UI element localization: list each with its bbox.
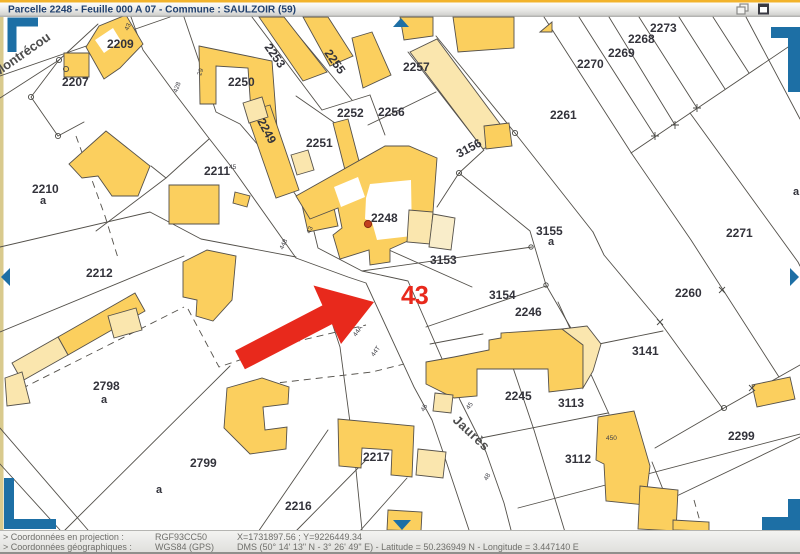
- svg-text:> Coordonnées en projection :: > Coordonnées en projection :: [3, 532, 124, 542]
- svg-text:a: a: [548, 236, 555, 248]
- svg-text:2798: 2798: [93, 379, 120, 393]
- svg-text:RGF93CC50: RGF93CC50: [155, 532, 207, 542]
- svg-text:2257: 2257: [403, 60, 430, 74]
- svg-text:a: a: [101, 394, 108, 406]
- svg-text:2252: 2252: [337, 106, 364, 120]
- svg-text:2207: 2207: [62, 75, 89, 89]
- svg-text:X=1731897.56 ; Y=9226449.34: X=1731897.56 ; Y=9226449.34: [237, 532, 362, 542]
- svg-text:2250: 2250: [228, 75, 255, 89]
- svg-text:2256: 2256: [378, 105, 405, 119]
- svg-text:2245: 2245: [505, 389, 532, 403]
- svg-text:2211: 2211: [204, 164, 230, 178]
- svg-text:2251: 2251: [306, 136, 333, 150]
- svg-text:2210: 2210: [32, 182, 59, 196]
- svg-text:2209: 2209: [107, 37, 134, 51]
- svg-text:3141: 3141: [632, 344, 659, 358]
- svg-text:2299: 2299: [728, 429, 755, 443]
- svg-text:DMS (50° 14' 13" N - 3° 26' 49: DMS (50° 14' 13" N - 3° 26' 49" E) - Lat…: [237, 542, 579, 552]
- svg-text:a: a: [793, 186, 800, 198]
- svg-text:2271: 2271: [726, 226, 753, 240]
- svg-text:2273: 2273: [650, 21, 677, 35]
- svg-text:2269: 2269: [608, 46, 635, 60]
- svg-text:WGS84 (GPS): WGS84 (GPS): [155, 542, 214, 552]
- svg-text:Parcelle 2248 - Feuille 000 A: Parcelle 2248 - Feuille 000 A 07 - Commu…: [8, 4, 296, 16]
- svg-text:45: 45: [229, 164, 237, 171]
- svg-text:2217: 2217: [363, 450, 390, 464]
- svg-text:2799: 2799: [190, 456, 217, 470]
- svg-text:2260: 2260: [675, 286, 702, 300]
- svg-text:2270: 2270: [577, 57, 604, 71]
- svg-text:2248: 2248: [371, 211, 398, 225]
- svg-text:2246: 2246: [515, 305, 542, 319]
- svg-text:43: 43: [401, 282, 429, 310]
- svg-text:3112: 3112: [565, 452, 591, 466]
- svg-text:2261: 2261: [550, 108, 577, 122]
- svg-text:a: a: [40, 195, 47, 207]
- svg-text:2212: 2212: [86, 266, 113, 280]
- svg-text:3154: 3154: [489, 288, 516, 302]
- svg-text:> Coordonnées géographiques :: > Coordonnées géographiques :: [3, 542, 132, 552]
- svg-text:2216: 2216: [285, 499, 312, 513]
- svg-text:450: 450: [606, 435, 617, 442]
- svg-text:3113: 3113: [558, 396, 584, 410]
- svg-text:3153: 3153: [430, 253, 457, 267]
- svg-text:a: a: [156, 484, 163, 496]
